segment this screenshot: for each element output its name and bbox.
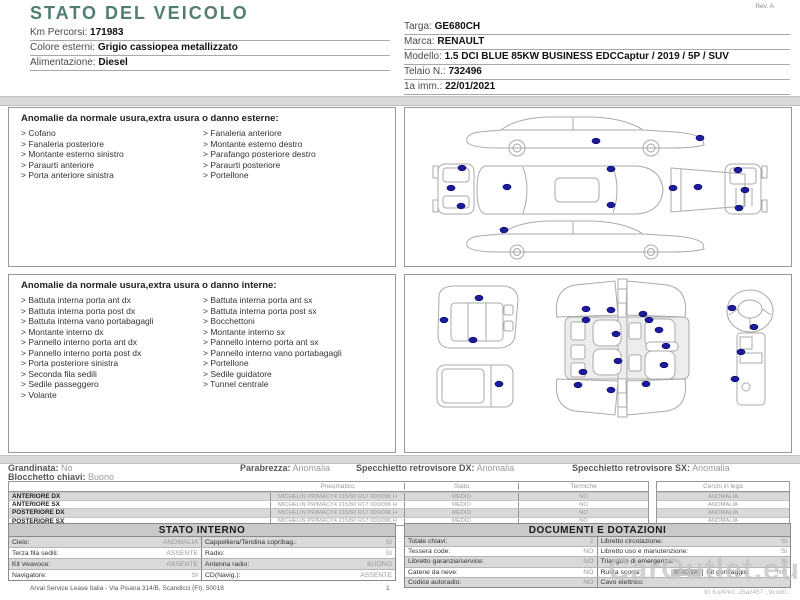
anomaly-item: > Bocchettoni	[203, 316, 385, 327]
row-value: ASSENTE	[166, 550, 201, 557]
tyre-spec: MICHELIN PRIMACY4 215/60 R17 000/096 H	[271, 493, 405, 500]
exterior-anomalies-title: Anomalie da normale usura,extra usura o …	[21, 113, 385, 124]
row-value: Si	[781, 538, 790, 545]
anomaly-item: > Battuta interna porta post sx	[203, 306, 385, 317]
row-value: BUONO	[367, 561, 395, 568]
anomaly-item: > Montante esterno sinistro	[21, 149, 203, 160]
header-stato: Stato	[405, 483, 519, 490]
revision-label: Rev. A	[755, 3, 774, 10]
row-label: Kit vivavoce:	[9, 561, 166, 568]
field-label: Telaio N.:	[404, 66, 446, 77]
anomaly-item: > Portellone	[203, 358, 385, 369]
field-label: Marca:	[404, 36, 435, 47]
field-label: Alimentazione:	[30, 57, 96, 68]
exterior-damage-dots	[447, 135, 749, 233]
anomaly-column: > Fanaleria anteriore > Montante esterno…	[203, 128, 385, 181]
tyre-position: POSTERIORE DX	[9, 509, 271, 516]
watermark: CarOutlet.eu	[608, 553, 800, 587]
tyre-row: ANTERIORE SX MICHELIN PRIMACY4 215/60 R1…	[9, 500, 648, 508]
table-row: Terza fila sedili:ASSENTE Radio:SI	[9, 547, 395, 558]
row-value: SI	[192, 572, 201, 579]
anomaly-column: > Cofano > Fanaleria posteriore > Montan…	[21, 128, 203, 181]
page-title: STATO DEL VEICOLO	[30, 3, 249, 24]
anomaly-item: > Parafango posteriore destro	[203, 149, 385, 160]
row-label: Tessera code:	[405, 548, 583, 555]
table-row: Navigatore:SI CD(Navig.):ASSENTE	[9, 569, 395, 580]
anomaly-item: > Pannello interno porta ant sx	[203, 337, 385, 348]
tyre-table: Pneumatico Stato Termiche ANTERIORE DX M…	[8, 481, 649, 526]
exterior-diagram-box	[404, 107, 792, 267]
field-value: 171983	[90, 27, 123, 38]
anomaly-item: > Battuta interna vano portabagagli	[21, 316, 203, 327]
interior-anomalies-columns: > Battuta interna porta ant dx > Battuta…	[21, 295, 385, 400]
anomaly-item: > Sedile guidatore	[203, 369, 385, 380]
tyre-state: MEDIO	[405, 501, 519, 508]
tyre-position: ANTERIORE SX	[9, 501, 271, 508]
field-colore: Colore esterni: Grigio cassiopea metalli…	[30, 41, 390, 56]
row-value: SI	[386, 550, 395, 557]
tyre-state: MEDIO	[405, 509, 519, 516]
anomaly-item: > Cofano	[21, 128, 203, 139]
separator-bar	[0, 96, 800, 106]
alloy-value: ANOMALIA	[657, 492, 789, 500]
field-label: Targa:	[404, 21, 432, 32]
table-row: Kit vivavoce:ASSENTE Antenna radio:BUONO	[9, 558, 395, 569]
row-value: SI	[386, 539, 395, 546]
anomaly-item: > Montante interno sx	[203, 327, 385, 338]
alloy-value: ANOMALIA	[657, 500, 789, 508]
summary-value: Anomalia	[293, 463, 331, 473]
anomaly-item: > Fanaleria posteriore	[21, 139, 203, 150]
row-label: Totale chiavi:	[405, 538, 590, 545]
summary-value: Anomalia	[477, 463, 515, 473]
field-label: 1a imm.:	[404, 81, 442, 92]
row-label: Antenna radio:	[202, 561, 367, 568]
field-value: 1.5 DCI BLUE 85KW BUSINESS EDCCaptur / 2…	[445, 51, 729, 62]
stato-interno-table: STATO INTERNO Cielo:ANOMALIA Cappelliera…	[8, 523, 396, 581]
tyre-row: ANTERIORE DX MICHELIN PRIMACY4 215/60 R1…	[9, 492, 648, 500]
anomaly-item: > Portellone	[203, 170, 385, 181]
anomaly-item: > Battuta interna porta ant sx	[203, 295, 385, 306]
row-label: Navigatore:	[9, 572, 192, 579]
interior-anomalies-box: Anomalie da normale usura,extra usura o …	[8, 274, 396, 453]
anomaly-item: > Porta posteriore sinistra	[21, 358, 203, 369]
anomaly-item: > Volante	[21, 390, 203, 401]
table-row: Totale chiavi:2 Libretto circolazione:Si	[405, 537, 790, 546]
interior-diagram-box	[404, 274, 792, 453]
tyre-thermal: NO	[519, 501, 648, 508]
field-alimentazione: Alimentazione: Diesel	[30, 56, 390, 71]
anomaly-item: > Montante esterno destro	[203, 139, 385, 150]
anomaly-column: > Battuta interna porta ant sx > Battuta…	[203, 295, 385, 400]
row-value: 2	[590, 538, 597, 545]
field-marca: Marca: RENAULT	[404, 35, 790, 50]
row-label: Libretto circolazione:	[598, 538, 781, 545]
row-label: CD(Navig.):	[202, 572, 360, 579]
summary-label: Specchietto retrovisore DX:	[356, 463, 475, 473]
field-value: 732496	[448, 66, 481, 77]
watermark-code: ID Ku/lPk0..25az457 ;.9cud0..	[704, 589, 790, 596]
car-exterior-diagram	[405, 108, 791, 266]
table-row: Cielo:ANOMALIA Cappelliera/Tendina copri…	[9, 537, 395, 547]
anomaly-item: > Sedile passeggero	[21, 379, 203, 390]
anomaly-item: > Pannello interno porta post dx	[21, 348, 203, 359]
field-value: Diesel	[98, 57, 127, 68]
field-label: Colore esterni:	[30, 42, 95, 53]
car-interior-diagram	[405, 275, 791, 452]
car-side-view-bottom	[467, 221, 704, 259]
field-km: Km Percorsi: 171983	[30, 26, 390, 41]
alloy-wheels-table: Cerchi in lega ANOMALIA ANOMALIA ANOMALI…	[656, 481, 790, 526]
field-immatricolazione: 1a imm.: 22/01/2021	[404, 80, 790, 95]
tyre-table-header: Pneumatico Stato Termiche	[9, 482, 648, 492]
vehicle-info-left: Km Percorsi: 171983 Colore esterni: Grig…	[30, 26, 390, 71]
footer-page-number: 1	[386, 585, 390, 592]
row-value: NO	[583, 569, 596, 576]
field-value: 22/01/2021	[445, 81, 495, 92]
row-value: NO	[583, 558, 596, 565]
alloy-value: ANOMALIA	[657, 508, 789, 516]
row-value: ANOMALIA	[163, 539, 201, 546]
row-label: Radio:	[202, 550, 386, 557]
vehicle-info-right: Targa: GE680CH Marca: RENAULT Modello: 1…	[404, 20, 790, 95]
anomaly-item: > Paraurti posteriore	[203, 160, 385, 171]
row-label: Cielo:	[9, 539, 163, 546]
row-value: ASSENTE	[360, 572, 395, 579]
tyre-position: ANTERIORE DX	[9, 493, 271, 500]
documenti-title: DOCUMENTI E DOTAZIONI	[405, 524, 790, 537]
stato-interno-title: STATO INTERNO	[9, 524, 395, 537]
field-value: GE680CH	[435, 21, 481, 32]
field-value: Grigio cassiopea metallizzato	[98, 42, 238, 53]
anomaly-item: > Montante interno dx	[21, 327, 203, 338]
header-cerchi: Cerchi in lega	[657, 482, 789, 492]
row-value: NO	[583, 579, 596, 586]
car-side-view-top	[467, 117, 704, 156]
anomaly-item: > Battuta interna porta post dx	[21, 306, 203, 317]
anomaly-item: > Fanaleria anteriore	[203, 128, 385, 139]
header-cerchi-label: Cerchi in lega	[703, 483, 743, 490]
summary-value: Anomalia	[692, 463, 730, 473]
row-value: NO	[583, 548, 596, 555]
header-termiche: Termiche	[519, 483, 648, 490]
anomaly-item: > Battuta interna porta ant dx	[21, 295, 203, 306]
field-modello: Modello: 1.5 DCI BLUE 85KW BUSINESS EDCC…	[404, 50, 790, 65]
anomaly-item: > Tunnel centrale	[203, 379, 385, 390]
tyre-state: MEDIO	[405, 493, 519, 500]
exterior-anomalies-box: Anomalie da normale usura,extra usura o …	[8, 107, 396, 267]
anomaly-item: > Seconda fila sedili	[21, 369, 203, 380]
row-label: Libretto garanzia/service:	[405, 558, 583, 565]
summary-specchietto-sx: Specchietto retrovisore SX: Anomalia	[572, 463, 730, 473]
exterior-anomalies-columns: > Cofano > Fanaleria posteriore > Montan…	[21, 128, 385, 181]
summary-specchietto-dx: Specchietto retrovisore DX: Anomalia	[356, 463, 514, 473]
tyre-thermal: NO	[519, 509, 648, 516]
anomaly-column: > Battuta interna porta ant dx > Battuta…	[21, 295, 203, 400]
row-label: Catene da neve:	[405, 569, 583, 576]
row-label: Cappelliera/Tendina copribag.:	[202, 539, 386, 546]
summary-label: Parabrezza:	[240, 463, 291, 473]
anomaly-item: > Porta anteriore sinistra	[21, 170, 203, 181]
interior-anomalies-title: Anomalie da normale usura,extra usura o …	[21, 280, 385, 291]
anomaly-item: > Pannello interno vano portabagagli	[203, 348, 385, 359]
anomaly-item: > Paraurti anteriore	[21, 160, 203, 171]
row-label: Codice autoradio:	[405, 579, 583, 586]
tyre-row: POSTERIORE DX MICHELIN PRIMACY4 215/60 R…	[9, 508, 648, 516]
summary-label: Specchietto retrovisore SX:	[572, 463, 690, 473]
field-label: Km Percorsi:	[30, 27, 87, 38]
field-label: Modello:	[404, 51, 442, 62]
header-pneumatico: Pneumatico	[271, 483, 405, 490]
footer-company: Arval Service Lease Italia - Via Pisana …	[30, 585, 224, 592]
summary-parabrezza: Parabrezza: Anomalia	[240, 463, 330, 473]
row-label: Terza fila sedili:	[9, 550, 166, 557]
field-telaio: Telaio N.: 732496	[404, 65, 790, 80]
anomaly-item: > Pannello interno porta ant dx	[21, 337, 203, 348]
field-targa: Targa: GE680CH	[404, 20, 790, 35]
tyre-spec: MICHELIN PRIMACY4 215/60 R17 000/096 H	[271, 509, 405, 516]
tyre-thermal: NO	[519, 493, 648, 500]
field-value: RENAULT	[437, 36, 484, 47]
row-value: ASSENTE	[166, 561, 201, 568]
tyre-spec: MICHELIN PRIMACY4 215/60 R17 000/096 H	[271, 501, 405, 508]
